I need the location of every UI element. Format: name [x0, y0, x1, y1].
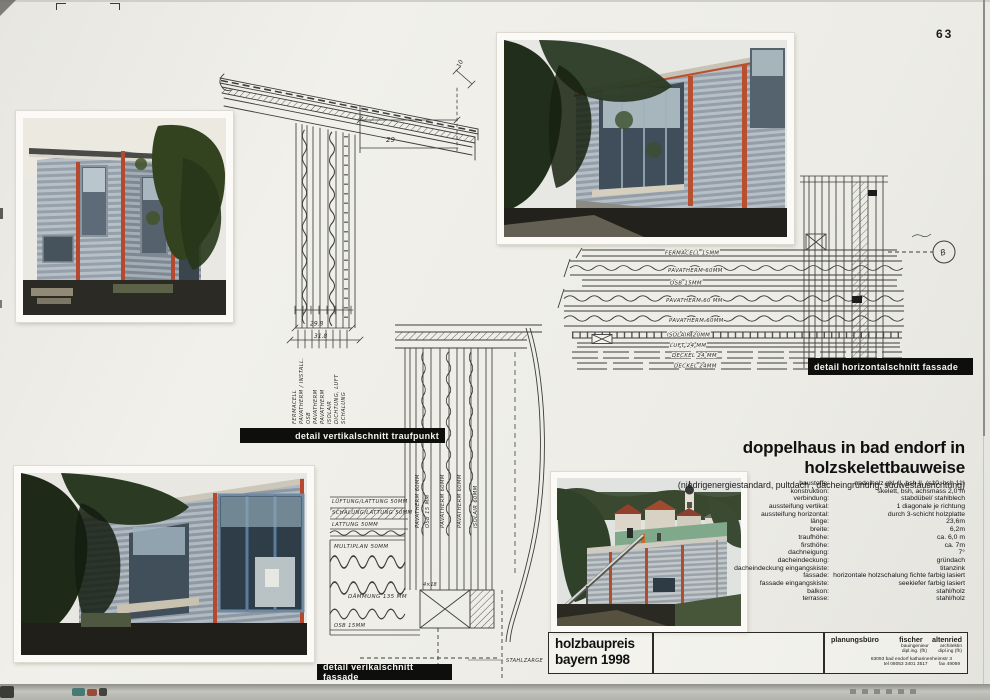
annotation-layer: pavatherm 60mm [457, 474, 463, 528]
award-title: holzbaupreis bayern 1998 [555, 636, 635, 668]
annotation-layer: multiplan 50mm [334, 544, 389, 550]
slab-hatch [395, 332, 527, 340]
spec-table: baustoffe:nadelholz gkl. II, bsh II, (s1… [620, 480, 965, 603]
spec-label: fassade eingangskiste: [760, 580, 829, 587]
spec-row: breite:6,2m [620, 526, 965, 534]
annotation-layer: lattung 50mm [332, 522, 378, 528]
annotation-layer: osb 15mm [334, 623, 365, 629]
page-number: 63 [936, 27, 953, 41]
photo-house-corner [16, 111, 233, 322]
spec-row: balkon:stahl/holz [620, 588, 965, 596]
insulation-wave [330, 582, 405, 594]
firm-fax: fax 49069 [939, 662, 960, 667]
spec-row: verbindung:stabdübel/ stahlblech [620, 495, 965, 503]
insulation-wave [330, 556, 405, 568]
spec-value: stahl/holz [936, 588, 965, 595]
firm-block: planungsbüro fischer altenried bauingeni… [826, 633, 967, 673]
insulation-wave [446, 352, 450, 536]
page-edge-line [983, 0, 985, 436]
spec-label: dachneigung: [788, 549, 829, 556]
firm-contact: tel 08053 3401 3517 fax 49069 [831, 662, 962, 667]
roof-hatch-band [222, 87, 475, 143]
annotation-layer: isolair 60mm [473, 485, 479, 528]
wall-assembly-lines [296, 106, 360, 328]
annotation-layer: pavatherm / install. [299, 358, 305, 424]
spec-row: fassade eingangskiste:seekiefer farbig l… [620, 580, 965, 588]
dim-box: 4×18 [423, 582, 437, 588]
label-text: detail horizontalschnitt fassade [814, 362, 958, 372]
post-block [852, 296, 862, 303]
spec-row: firsthöhe:ca. 7m [620, 542, 965, 550]
spec-label: terrasse: [803, 595, 829, 602]
spec-row: terrasse:stahl/holz [620, 595, 965, 603]
spec-row: aussteifung horizontal:durch 3-schicht h… [620, 511, 965, 519]
scan-smudge [850, 689, 920, 694]
spec-value: seekiefer farbig lasiert [899, 580, 966, 587]
spec-label: baustoffe: [799, 480, 829, 487]
spec-row: dacheindeckung eingangskiste:titanzink [620, 565, 965, 573]
spec-row: länge:23,6m [620, 518, 965, 526]
post-block [868, 190, 877, 196]
annotation-layer: deckel 24 mm [672, 353, 717, 359]
spec-row: traufhöhe:ca. 6,0 m [620, 534, 965, 542]
spec-value: horizontale holzschalung fichte farbig l… [833, 572, 965, 579]
annotation-layer: lüftung/lattung 50mm [332, 498, 408, 505]
spec-value: nadelholz gkl. II, bsh II, (s10, bsh 11) [854, 480, 965, 487]
spec-value: titanzink [940, 565, 965, 572]
insulation-wave [330, 132, 335, 326]
pen-mark-icon [56, 3, 66, 10]
handwriting-squiggle [912, 234, 931, 237]
scan-edge-mark [0, 300, 2, 308]
pen-mark-icon [110, 3, 120, 10]
label-detail-traufpunkt: detail vertikalschnitt traufpunkt [240, 428, 445, 443]
annotation-layer: pavatherm 60 mm [666, 298, 723, 304]
spec-value: gründach [937, 557, 965, 564]
label-detail-horizontal-fassade: detail horizontalschnitt fassade [808, 358, 973, 375]
spec-value: durch 3-schicht holzplatte [888, 511, 965, 518]
annotation-layer: pavatherm [313, 389, 319, 424]
dim-width: 29 [386, 136, 395, 144]
firm-role: planungsbüro [831, 635, 879, 644]
scan-smudge [99, 688, 107, 696]
spec-label: aussteifung vertikal: [769, 503, 829, 510]
spec-label: konstruktion: [790, 488, 829, 495]
annotation-layer: pavatherm 60mm [440, 474, 446, 528]
spec-value: ca. 7m [945, 542, 965, 549]
spec-row: konstruktion:skelett, bsh, achsmass 2,0 … [620, 488, 965, 496]
firm-degrees: dipl.ing. (fh) dipl.ing (fh) [831, 649, 962, 654]
annotation-layer: fermacell 15mm [665, 251, 719, 257]
spec-row: dacheindeckung:gründach [620, 557, 965, 565]
spec-value: stabdübel/ stahlblech [901, 495, 965, 502]
label-detail-vertikal-fassade: detail verikalschnitt fassade [317, 664, 452, 680]
firm-deg1: dipl.ing. (fh) [902, 649, 927, 654]
spec-row: baustoffe:nadelholz gkl. II, bsh II, (s1… [620, 480, 965, 488]
scan-smudge [72, 688, 85, 696]
downpipe-curve [506, 328, 544, 642]
annotation-layer: luft 24 mm [670, 343, 706, 349]
strip-divider [652, 633, 654, 673]
scan-smudge [0, 686, 14, 698]
annotation-layer: pavatherm 60mm [669, 318, 724, 324]
label-text: detail verikalschnitt fassade [323, 662, 446, 682]
spec-label: breite: [810, 526, 829, 533]
spec-value: 1 diagonale je richtung [897, 503, 965, 510]
label-text: detail vertikalschnitt traufpunkt [295, 431, 439, 441]
dim-roof-overhang: 10 [455, 59, 465, 69]
bowtie-symbol [592, 335, 612, 344]
annotation-layer: isolair 20mm [667, 333, 710, 339]
annotation-layer: pavatherm 60mm [668, 268, 723, 274]
spec-label: fassade: [803, 572, 829, 579]
section-marker-label: B [939, 247, 947, 257]
spec-row: dachneigung:7° [620, 549, 965, 557]
annotation-layer: osb 15mm [670, 281, 702, 287]
annotation-layer: osb 15 mm [425, 494, 431, 528]
scan-smudge [87, 689, 97, 696]
firm-deg2: dipl.ing (fh) [938, 649, 962, 654]
firm-tel: tel 08053 3401 3517 [884, 662, 928, 667]
spec-value: stahl/holz [936, 595, 965, 602]
annotation-layer: pavatherm 60mm [415, 474, 421, 528]
annotation-layer: dämmung 135 mm [348, 593, 407, 600]
scan-top-edge [0, 0, 990, 2]
scan-bottom-band [0, 684, 990, 700]
insulation-wave [303, 130, 307, 324]
spec-label: verbindung: [793, 495, 829, 502]
insulation-wave [330, 531, 405, 535]
spec-label: dacheindeckung eingangskiste: [734, 565, 829, 572]
roof-membrane-line [221, 81, 477, 132]
firm-name1: fischer [899, 635, 923, 644]
spec-value: skelett, bsh, achsmass 2,0 m [877, 488, 965, 495]
annotation-layer: schalung/lattung 50mm [332, 510, 413, 516]
annotation-stahlzarge: stahlzarge [506, 658, 544, 664]
spec-label: firsthöhe: [801, 542, 829, 549]
spec-value: ca. 6,0 m [937, 534, 965, 541]
page-edge-line-faint [983, 436, 984, 686]
spec-value: 23,6m [946, 518, 965, 525]
project-title: doppelhaus in bad endorf in holzskelettb… [620, 438, 965, 478]
spec-label: dacheindeckung: [778, 557, 829, 564]
photo-facade-garden [14, 466, 314, 662]
spec-value: 7° [959, 549, 966, 556]
insulation-wave [330, 609, 405, 619]
wall-layer-annotations: pavatherm 60mm osb 15 mm pavatherm 60mm … [415, 474, 479, 528]
post-assembly-lines [800, 176, 888, 368]
firm-name2: altenried [932, 635, 962, 644]
post-hatch [852, 182, 868, 362]
scan-corner-shadow [0, 0, 16, 16]
photo-facade-garden-image [21, 473, 307, 655]
drawing-horizontalschnitt-fassade: fermacell 15mm pavatherm 60mm osb 15mm p… [552, 162, 980, 380]
annotation-layer: deckel 24mm [674, 364, 717, 370]
award-line1: holzbaupreis [555, 636, 635, 652]
strip-divider [823, 633, 825, 673]
spec-label: länge: [810, 518, 829, 525]
spec-row: aussteifung vertikal:1 diagonale je rich… [620, 503, 965, 511]
spec-label: traufhöhe: [798, 534, 829, 541]
scan-edge-mark [0, 208, 3, 219]
spec-label: balkon: [807, 588, 829, 595]
annotation-layer: osb [306, 412, 312, 424]
annotation-layer: fermacell [292, 390, 298, 424]
spec-label: aussteifung horizontal: [761, 511, 829, 518]
drawing-vertikalschnitt-fassade: pavatherm 60mm osb 15 mm pavatherm 60mm … [320, 322, 550, 684]
spec-row: fassade:horizontale holzschalung fichte … [620, 572, 965, 580]
scan-sheet: 63 [0, 0, 990, 700]
firm-names: fischer altenried [891, 635, 962, 644]
spec-value: 6,2m [950, 526, 965, 533]
photo-house-corner-image [23, 118, 226, 315]
title-strip: holzbaupreis bayern 1998 planungsbüro fi… [548, 632, 968, 674]
award-line2: bayern 1998 [555, 652, 635, 668]
